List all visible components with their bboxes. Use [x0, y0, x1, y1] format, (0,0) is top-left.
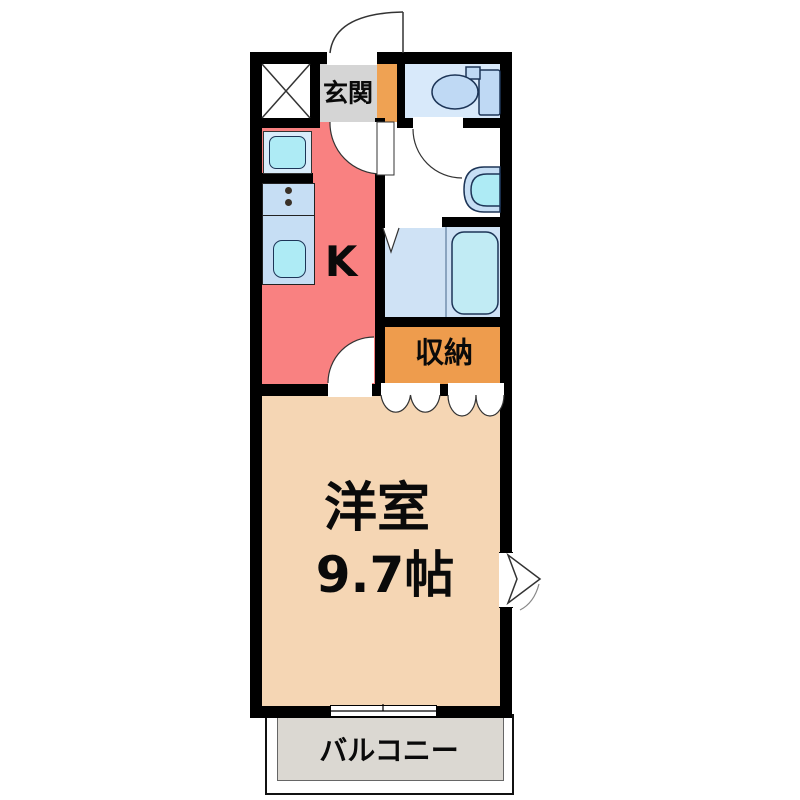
- entry-door-opening: [327, 51, 377, 65]
- wall: [310, 52, 320, 128]
- closet-opening-left: [381, 383, 440, 397]
- bathroom: [385, 227, 500, 317]
- wall: [250, 118, 320, 128]
- floorplan-canvas: 玄関 K 収納 洋室 9.7帖 バルコニー: [0, 0, 800, 800]
- toilet-room: [405, 64, 500, 118]
- side-window-opening: [499, 552, 513, 608]
- washroom: [385, 128, 500, 217]
- kitchen-sink-icon: [273, 240, 306, 278]
- wall: [397, 52, 405, 128]
- toilet-door-opening: [413, 117, 463, 129]
- washing-machine-pan-inner: [269, 136, 306, 169]
- wall: [375, 317, 512, 327]
- wall: [250, 52, 512, 64]
- pipe-space-box: [262, 64, 310, 118]
- stove-burners-icon: [285, 187, 292, 194]
- stove-burners-icon: [285, 199, 292, 206]
- closet-opening-right: [448, 383, 504, 397]
- entry-step: [377, 64, 397, 122]
- balcony-label: バルコニー: [319, 737, 458, 765]
- genkan-label: 玄関: [323, 81, 373, 106]
- kitchen-label: K: [325, 241, 358, 283]
- kitchen-door-opening: [328, 383, 372, 397]
- storage-label: 収納: [415, 339, 473, 368]
- sliding-window: [330, 705, 437, 717]
- wall: [262, 173, 313, 183]
- bath-door-opening: [385, 216, 442, 228]
- western-room-size-label: 9.7帖: [316, 550, 455, 600]
- counter-divider: [262, 215, 315, 216]
- western-room-label: 洋室: [324, 482, 430, 535]
- wall: [375, 118, 385, 396]
- entry-door-swing-icon: [330, 12, 403, 53]
